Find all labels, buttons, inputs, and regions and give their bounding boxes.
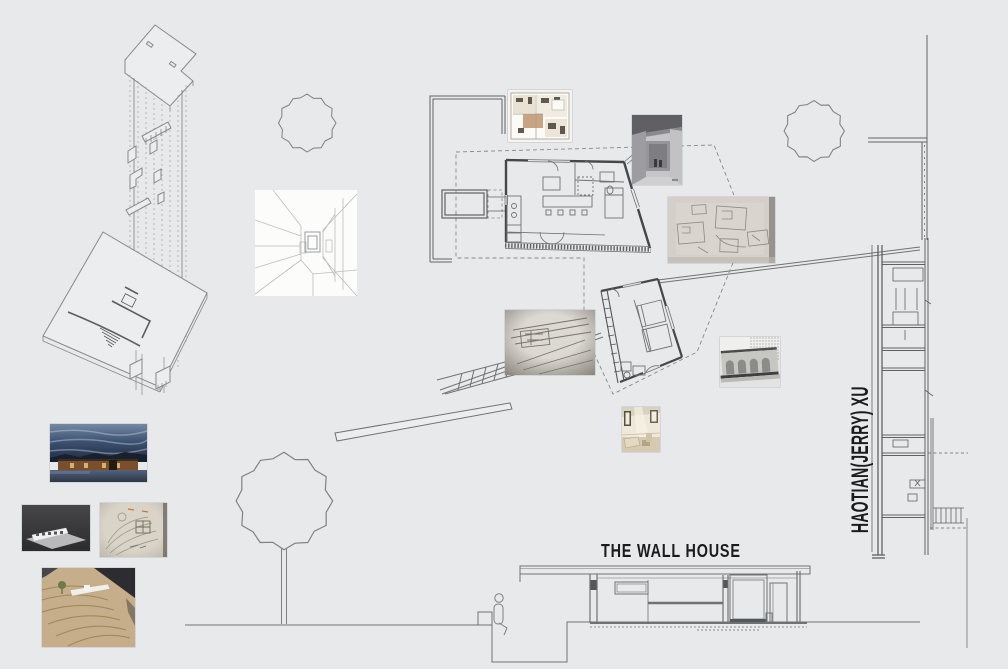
entry-court (442, 190, 506, 218)
rendered-plan-photo (508, 90, 572, 142)
perspective-study-sketch-photo (505, 310, 595, 375)
l-shaped-site-wall (430, 96, 505, 262)
plan-study-sketch-photo (668, 197, 775, 263)
seated-human-figure (494, 594, 507, 635)
board-title: THE WALL HOUSE (601, 542, 741, 560)
section-floor-slabs (882, 262, 925, 518)
courtyard-dashed (488, 190, 502, 218)
white-model-photo (22, 505, 90, 551)
hatched-plan-wall (505, 243, 651, 253)
elevation-drawing (180, 555, 925, 669)
main-house-walls (506, 160, 650, 248)
ground-line (185, 622, 920, 662)
wood-site-model-photo (42, 568, 135, 647)
perspective-sketch (255, 190, 357, 296)
presentation-board: THE WALL HOUSE HAOTIAN(JERRY) XU (0, 0, 1008, 669)
door-swings (540, 161, 593, 244)
concrete-facade-photo (720, 337, 780, 387)
board-author: HAOTIAN(JERRY) XU (849, 386, 873, 533)
ramp-wall (335, 403, 512, 441)
courtyard-photo (632, 115, 682, 185)
interior-skylight-photo (622, 407, 660, 452)
bedroom-plan-walls (601, 279, 682, 382)
house-dusk-photo (50, 424, 147, 482)
section-rooms (893, 268, 933, 501)
bedroom-stair (601, 290, 624, 383)
section-stair-annex (928, 418, 968, 648)
site-concept-sketch-photo (100, 503, 167, 557)
planter-box (478, 612, 492, 625)
elevation-building (520, 566, 810, 630)
